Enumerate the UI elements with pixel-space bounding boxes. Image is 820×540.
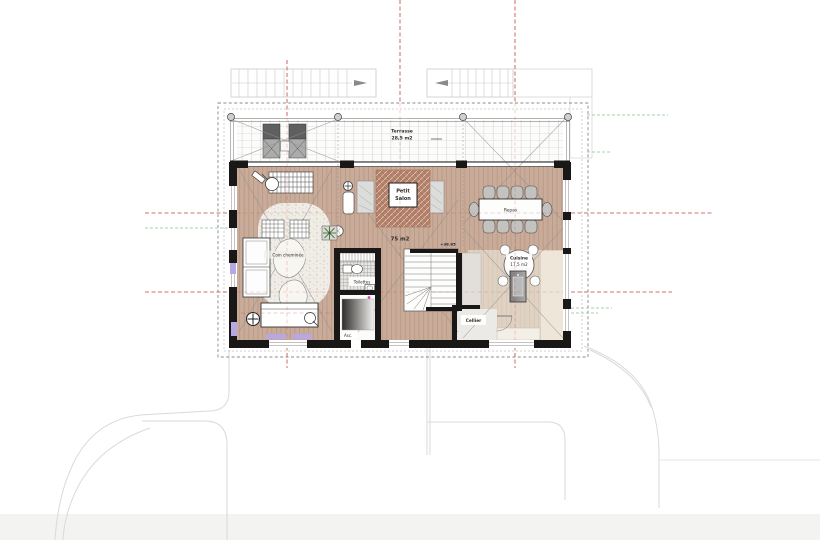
pantry-label: Cellier <box>466 318 482 324</box>
petit-salon-label-2: Salon <box>395 196 411 202</box>
lounge-chair <box>263 124 280 158</box>
petit-salon-label-box <box>389 183 417 207</box>
toilet-bowl <box>352 265 363 274</box>
bottom-gray-band <box>0 514 820 540</box>
chaise-right <box>429 181 444 213</box>
fireplace-corner-label: Coin cheminée <box>272 253 304 258</box>
plant-icon <box>323 227 336 240</box>
petit-salon-label-1: Petit <box>396 189 410 195</box>
elevator-label: Asc. <box>344 333 352 338</box>
terrace-area-label: 28,5 m2 <box>392 136 413 142</box>
kitchen-area-label: 17,5 m2 <box>510 262 528 267</box>
kitchen-counter-band <box>541 251 563 341</box>
level-marker: +38.85 <box>440 242 456 247</box>
terrace-side-table <box>281 141 290 151</box>
floor-plan-canvas: Terrasse 28,5 m2 <box>0 0 820 540</box>
elevator-car <box>342 299 374 330</box>
console-table <box>343 192 354 214</box>
stair-closet <box>462 253 481 308</box>
side-table <box>262 220 284 238</box>
compass-symbol <box>247 313 260 326</box>
terrace-label: Terrasse <box>391 129 413 135</box>
toilet-tank <box>343 265 352 273</box>
kitchen-label: Cuisine <box>510 256 528 262</box>
lounge-chair <box>289 124 306 158</box>
living-area-label: 75 m2 <box>391 237 410 243</box>
toilets-label: Toilettes <box>353 280 371 285</box>
floor-plan-drawing: Terrasse 28,5 m2 <box>0 0 820 540</box>
kitchen-sink <box>513 277 523 296</box>
